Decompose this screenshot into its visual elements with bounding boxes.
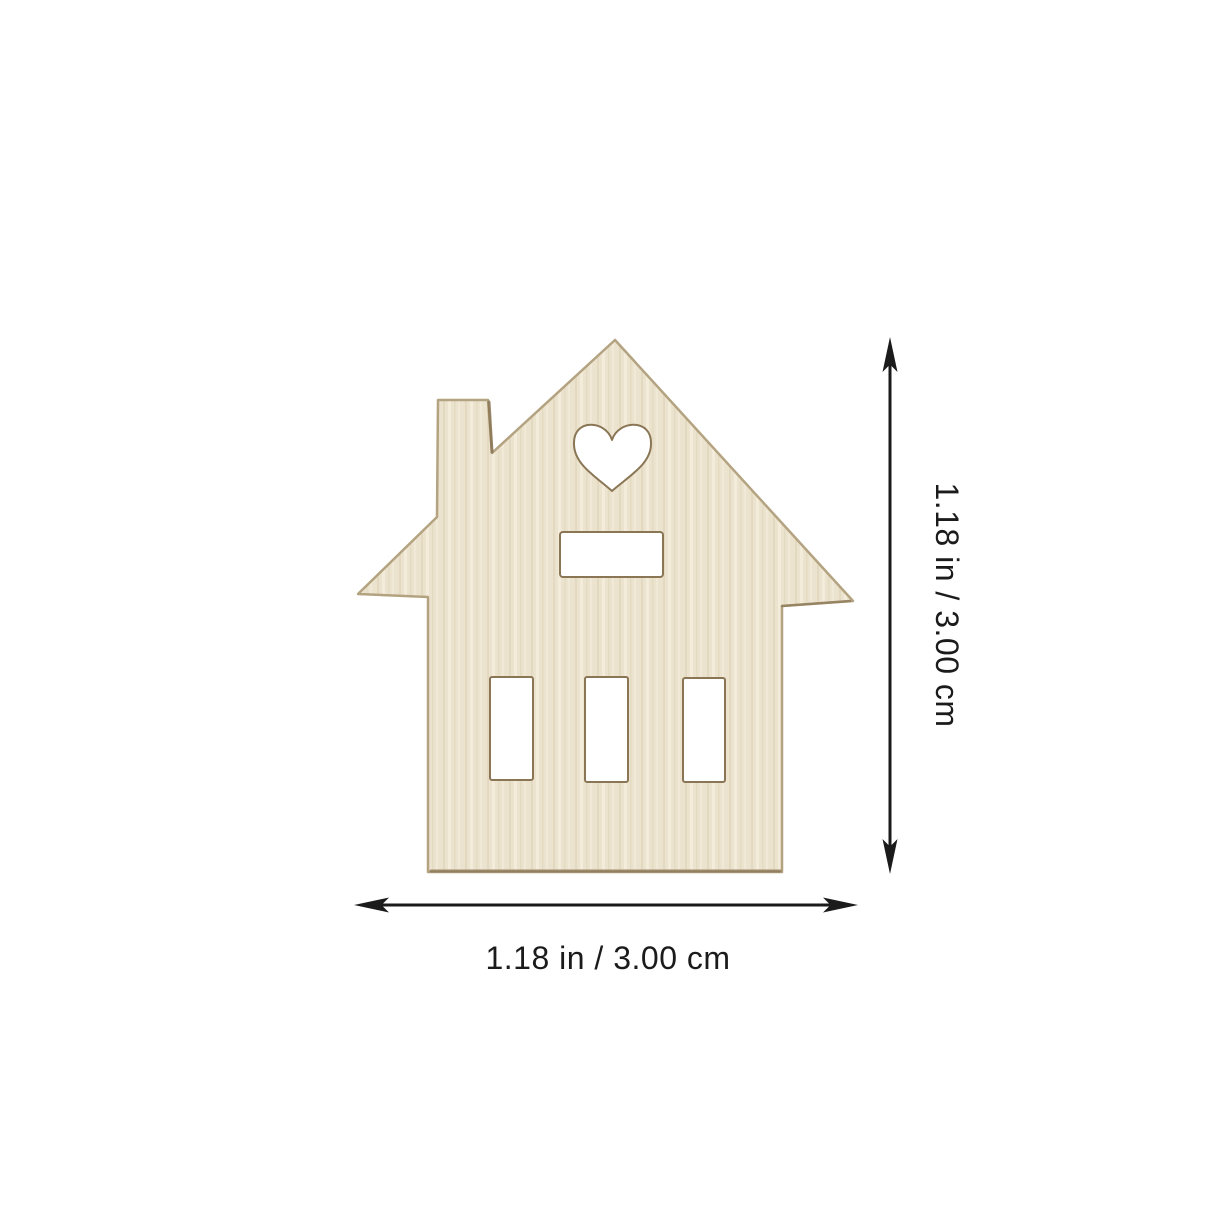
door-sign-cutout bbox=[560, 532, 663, 577]
wood-house-image bbox=[358, 340, 853, 872]
window-cutout-right bbox=[683, 678, 725, 782]
height-dimension: 1.18 in / 3.00 cm bbox=[883, 337, 966, 874]
height-dimension-label: 1.18 in / 3.00 cm bbox=[929, 482, 965, 727]
window-cutout-left bbox=[490, 677, 533, 780]
window-cutout-middle bbox=[585, 677, 628, 782]
width-dimension-label: 1.18 in / 3.00 cm bbox=[485, 940, 730, 976]
width-dimension: 1.18 in / 3.00 cm bbox=[354, 898, 858, 977]
diagram-canvas: 1.18 in / 3.00 cm 1.18 in / 3.00 cm bbox=[0, 0, 1214, 1214]
product-dimension-diagram: 1.18 in / 3.00 cm 1.18 in / 3.00 cm bbox=[0, 0, 1214, 1214]
house-cutout-shape bbox=[358, 340, 853, 872]
